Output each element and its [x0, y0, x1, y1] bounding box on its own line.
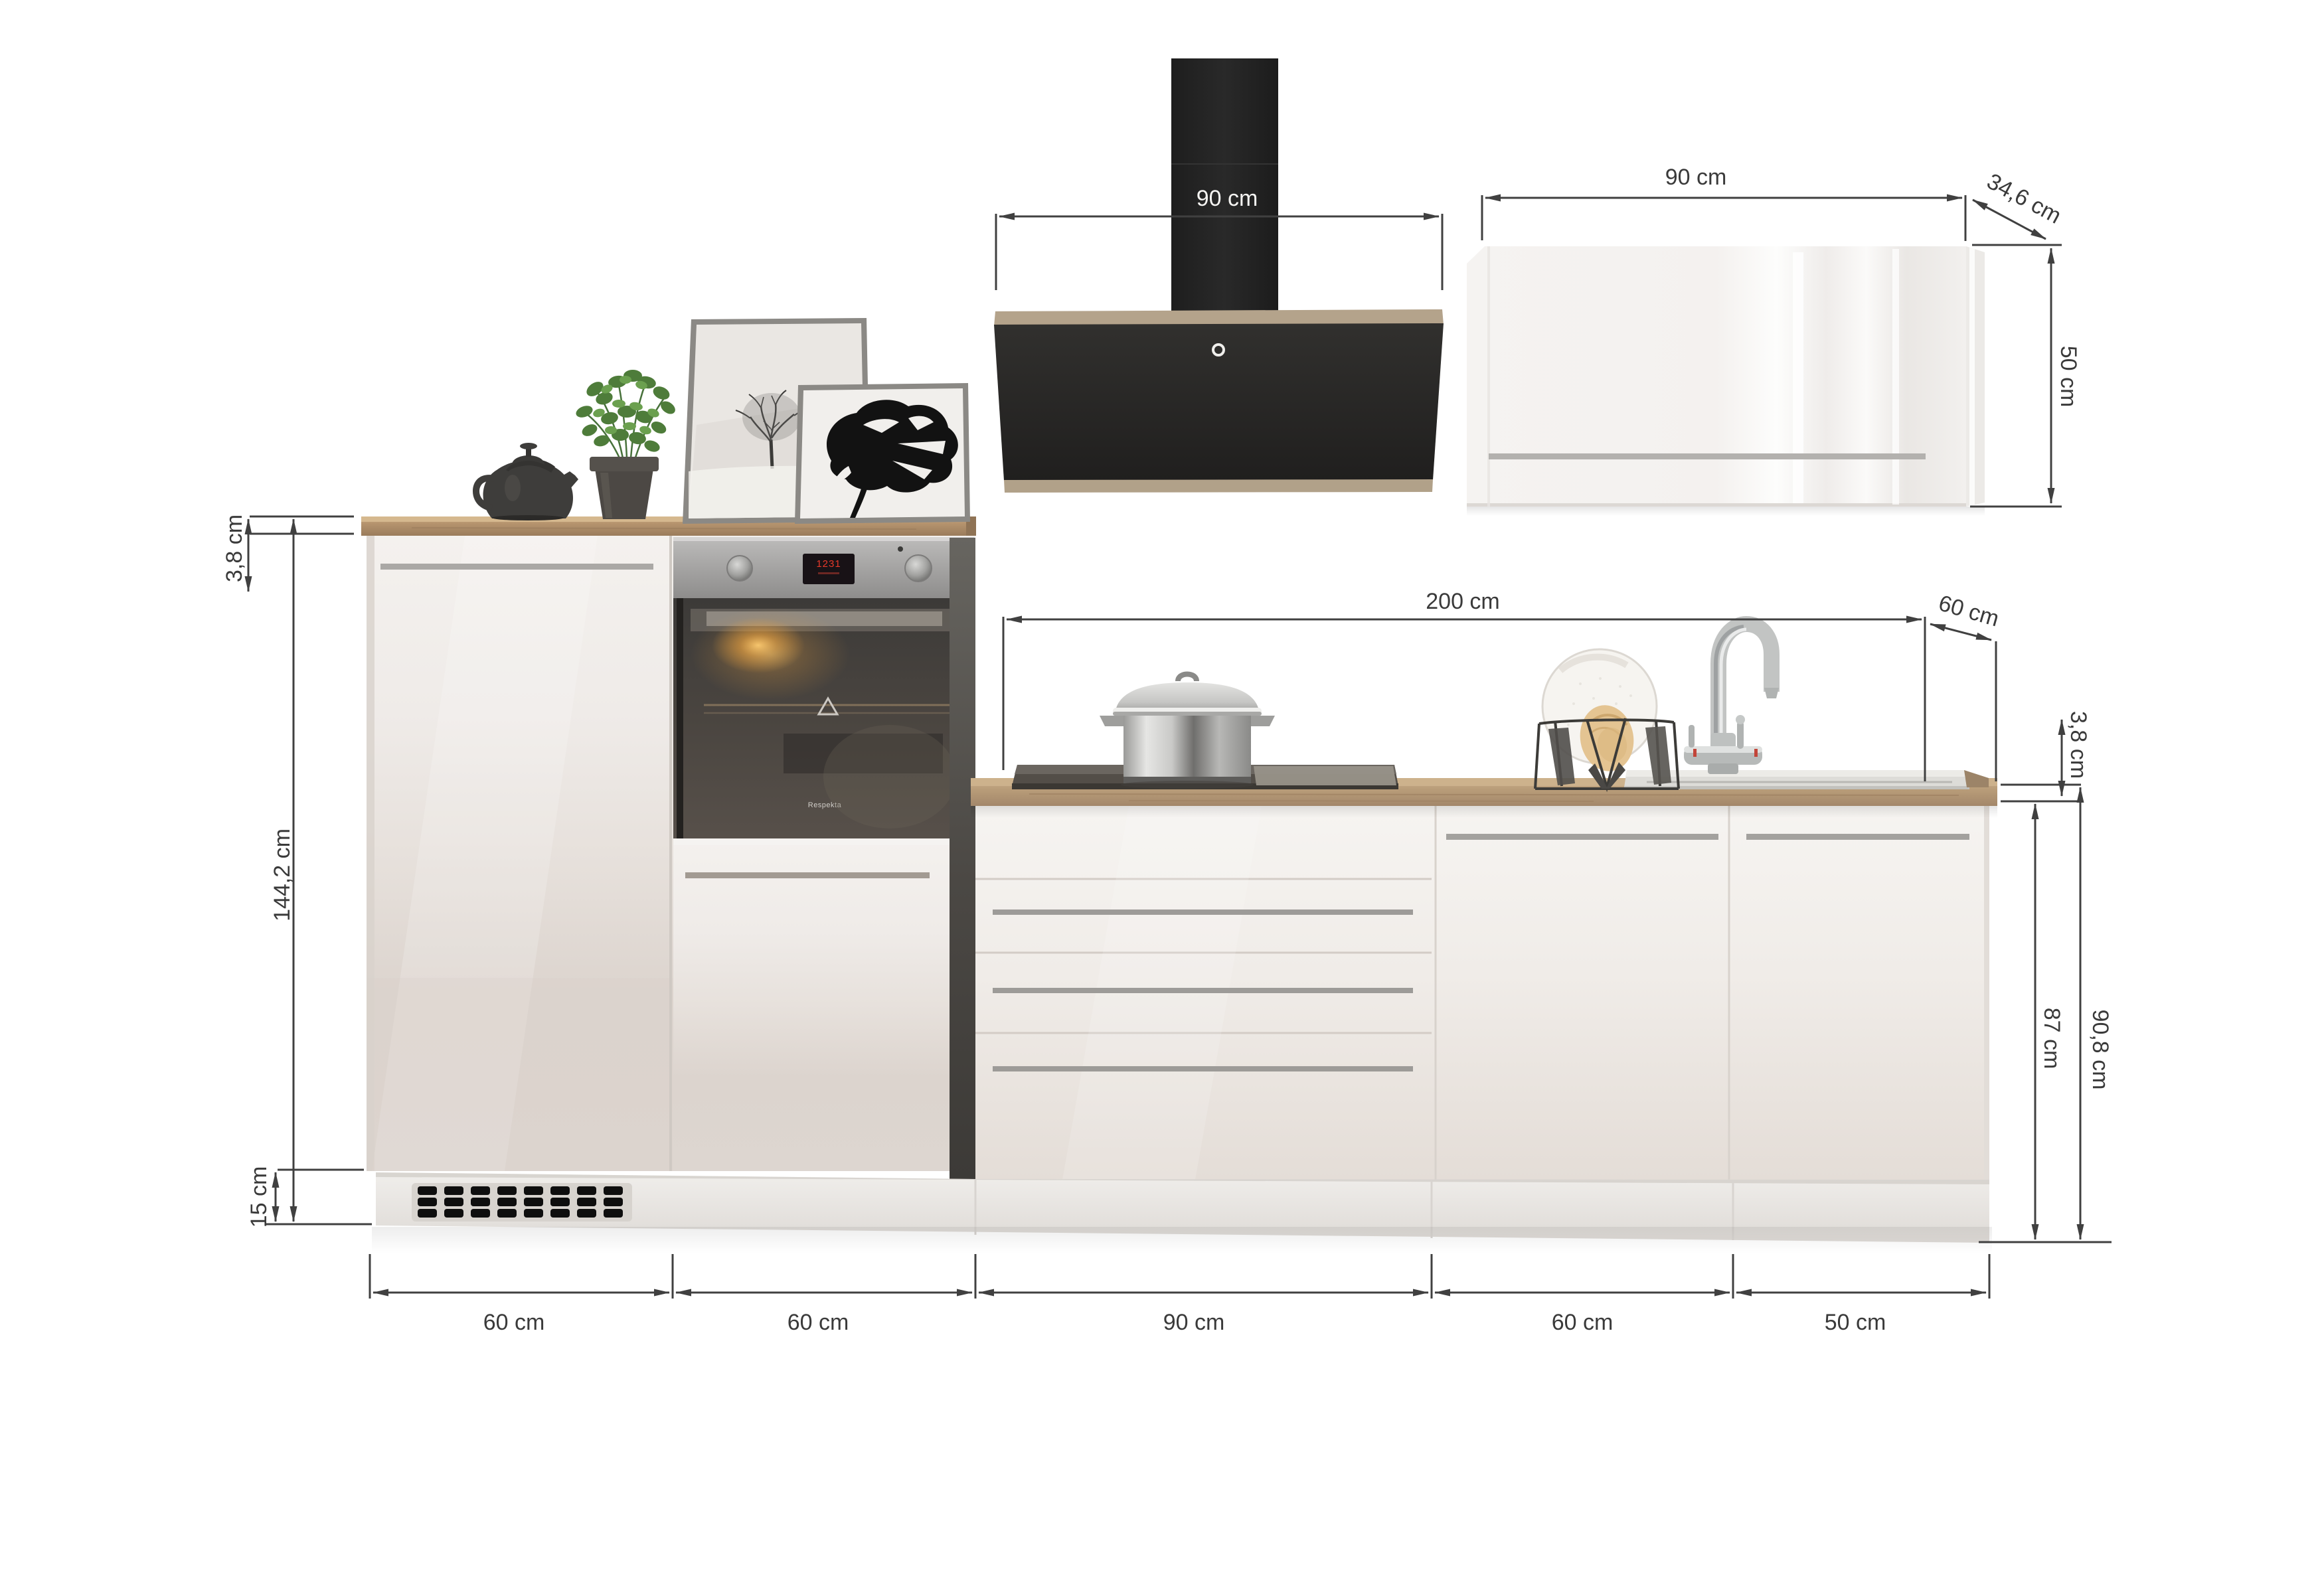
svg-text:3,8 cm: 3,8 cm [222, 514, 247, 582]
svg-text:60 cm: 60 cm [788, 1310, 849, 1335]
svg-text:1231: 1231 [816, 558, 841, 570]
svg-text:15 cm: 15 cm [246, 1166, 272, 1228]
svg-text:90 cm: 90 cm [1163, 1310, 1225, 1335]
svg-text:90 cm: 90 cm [1197, 186, 1258, 211]
svg-text:144,2 cm: 144,2 cm [270, 829, 295, 921]
svg-text:3,8 cm: 3,8 cm [2066, 711, 2091, 779]
svg-text:87 cm: 87 cm [2039, 1008, 2064, 1069]
svg-text:60 cm: 60 cm [1552, 1310, 1614, 1335]
svg-text:90,8 cm: 90,8 cm [2088, 1010, 2113, 1090]
svg-text:200 cm: 200 cm [1426, 589, 1500, 614]
svg-text:50 cm: 50 cm [1825, 1310, 1886, 1335]
svg-text:90 cm: 90 cm [1665, 165, 1727, 190]
svg-text:60 cm: 60 cm [483, 1310, 545, 1335]
svg-text:50 cm: 50 cm [2056, 346, 2081, 408]
